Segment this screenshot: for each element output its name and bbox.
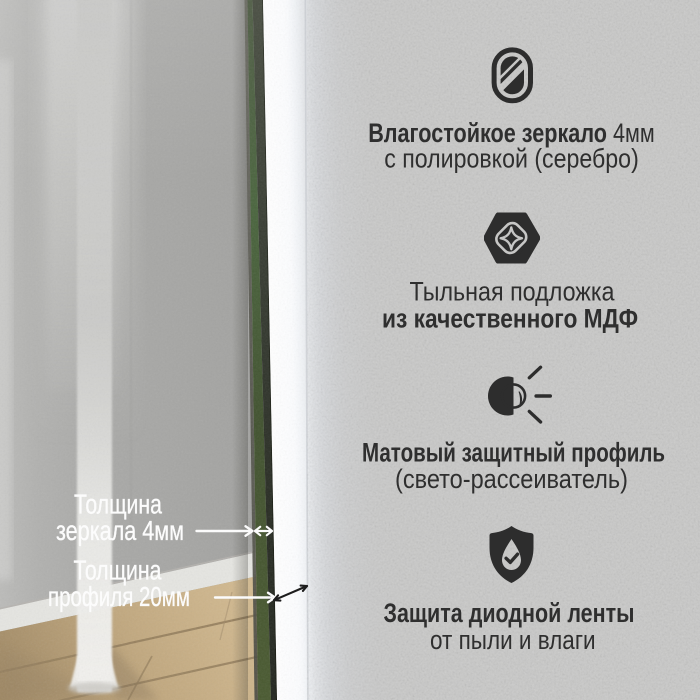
svg-text:(свето-рассеиватель): (свето-рассеиватель) [395, 464, 628, 494]
svg-text:зеркала 4мм: зеркала 4мм [56, 515, 184, 546]
svg-text:из качественного МДФ: из качественного МДФ [382, 304, 638, 334]
svg-text:Матовый защитный профиль: Матовый защитный профиль [362, 438, 665, 468]
svg-text:от пыли и влаги: от пыли и влаги [430, 625, 596, 655]
svg-text:с полировкой (серебро): с полировкой (серебро) [384, 144, 639, 174]
svg-text:профиля 20мм: профиля 20мм [48, 581, 190, 612]
svg-text:Защита диодной ленты: Защита диодной ленты [384, 598, 635, 628]
svg-text:Тыльная подложка: Тыльная подложка [410, 277, 616, 307]
